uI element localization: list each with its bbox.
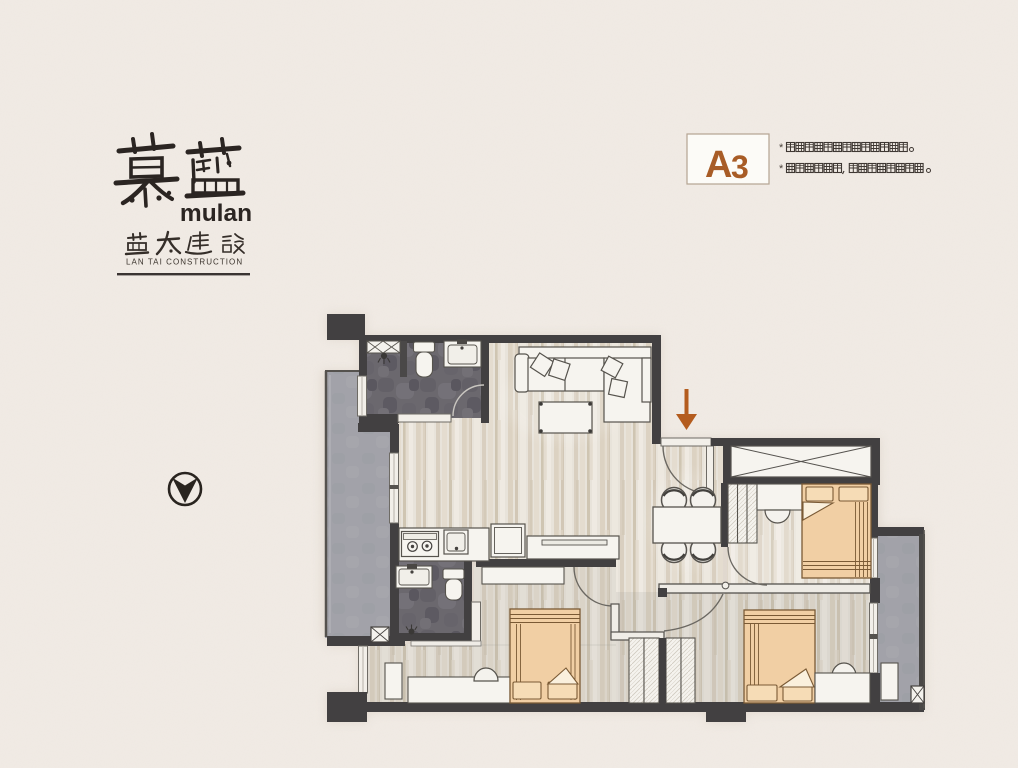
svg-text:LAN TAI CONSTRUCTION: LAN TAI CONSTRUCTION (126, 258, 243, 267)
svg-text:A: A (705, 144, 732, 186)
svg-text:*: * (779, 163, 784, 175)
svg-text:3: 3 (731, 149, 749, 185)
svg-text:*: * (779, 142, 784, 154)
svg-text:mulan: mulan (180, 200, 252, 227)
